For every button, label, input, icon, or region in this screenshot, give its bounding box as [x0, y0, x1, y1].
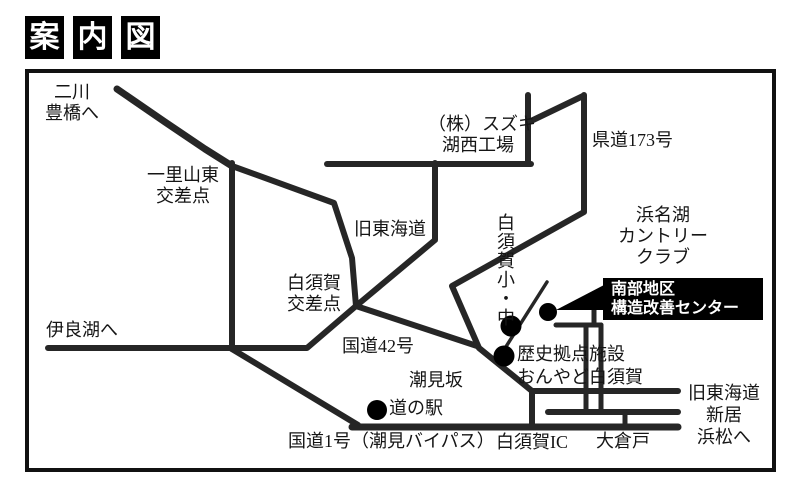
label-old-tokaido-east: 旧東海道 新居 浜松へ: [682, 382, 766, 448]
title-char-box: 案: [25, 16, 64, 59]
map-title: 案 内 図: [25, 16, 160, 59]
label-old-tokaido: 旧東海道: [354, 219, 426, 240]
label-okurado: 大倉戸: [596, 431, 650, 452]
label-shirasuka-school: 白須賀小・中: [494, 213, 516, 327]
road-factory-link: [531, 96, 583, 121]
label-route-1-bypass: 国道1号（潮見バイパス）: [288, 431, 495, 452]
label-shiomizaka: 潮見坂: [409, 370, 463, 391]
label-kendo-173: 県道173号: [592, 130, 673, 151]
marker-dot-center-facility: [539, 303, 557, 321]
marker-dot-michinoeki: [367, 400, 387, 420]
label-destination-futagawa: 二川 豊橋へ: [40, 82, 104, 124]
label-rekishi-onyado: 歴史拠点施設 おんやど白須賀: [517, 343, 643, 389]
road-to-toyohashi: [117, 89, 232, 166]
road-route1-feeder: [232, 349, 358, 425]
title-char-box: 図: [121, 16, 160, 59]
label-destination-irago: 伊良湖へ: [46, 320, 118, 341]
label-michinoeki: 道の駅: [389, 398, 443, 419]
guide-map-page: { "title": { "chars": ["案", "内", "図"] },…: [0, 0, 800, 493]
label-route-42: 国道42号: [342, 336, 414, 357]
marker-dot-rekishi: [494, 346, 515, 367]
label-hamanako-country-club: 浜名湖 カントリー クラブ: [616, 205, 710, 268]
label-center-facility-box: 南部地区 構造改善センター: [603, 278, 763, 320]
label-ichiriyama-intersection: 一里山東 交差点: [140, 165, 226, 207]
label-shirasuka-ic: 白須賀IC: [496, 432, 568, 453]
facility-pointer-icon: [556, 285, 604, 310]
title-char-box: 内: [73, 16, 112, 59]
label-shirasuka-intersection: 白須賀 交差点: [280, 273, 348, 315]
label-suzuki-factory: （株）スズキ 湖西工場: [428, 114, 528, 156]
